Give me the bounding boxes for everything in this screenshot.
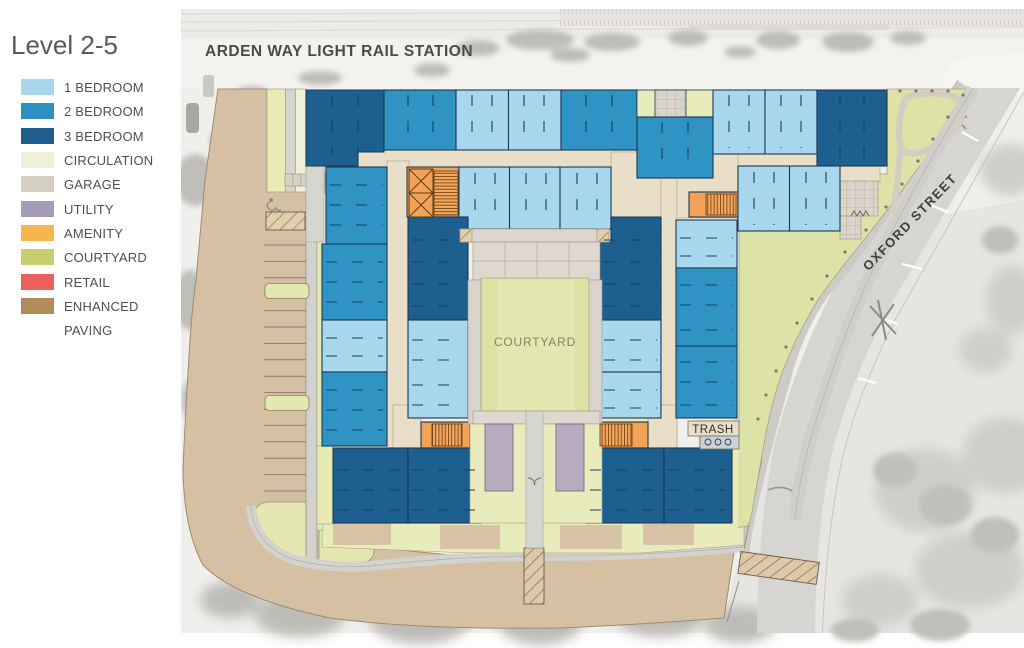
svg-text:TRASH: TRASH — [692, 424, 733, 436]
svg-text:ARDEN WAY LIGHT RAIL STATION: ARDEN WAY LIGHT RAIL STATION — [205, 43, 473, 60]
svg-text:COURTYARD: COURTYARD — [494, 335, 576, 349]
